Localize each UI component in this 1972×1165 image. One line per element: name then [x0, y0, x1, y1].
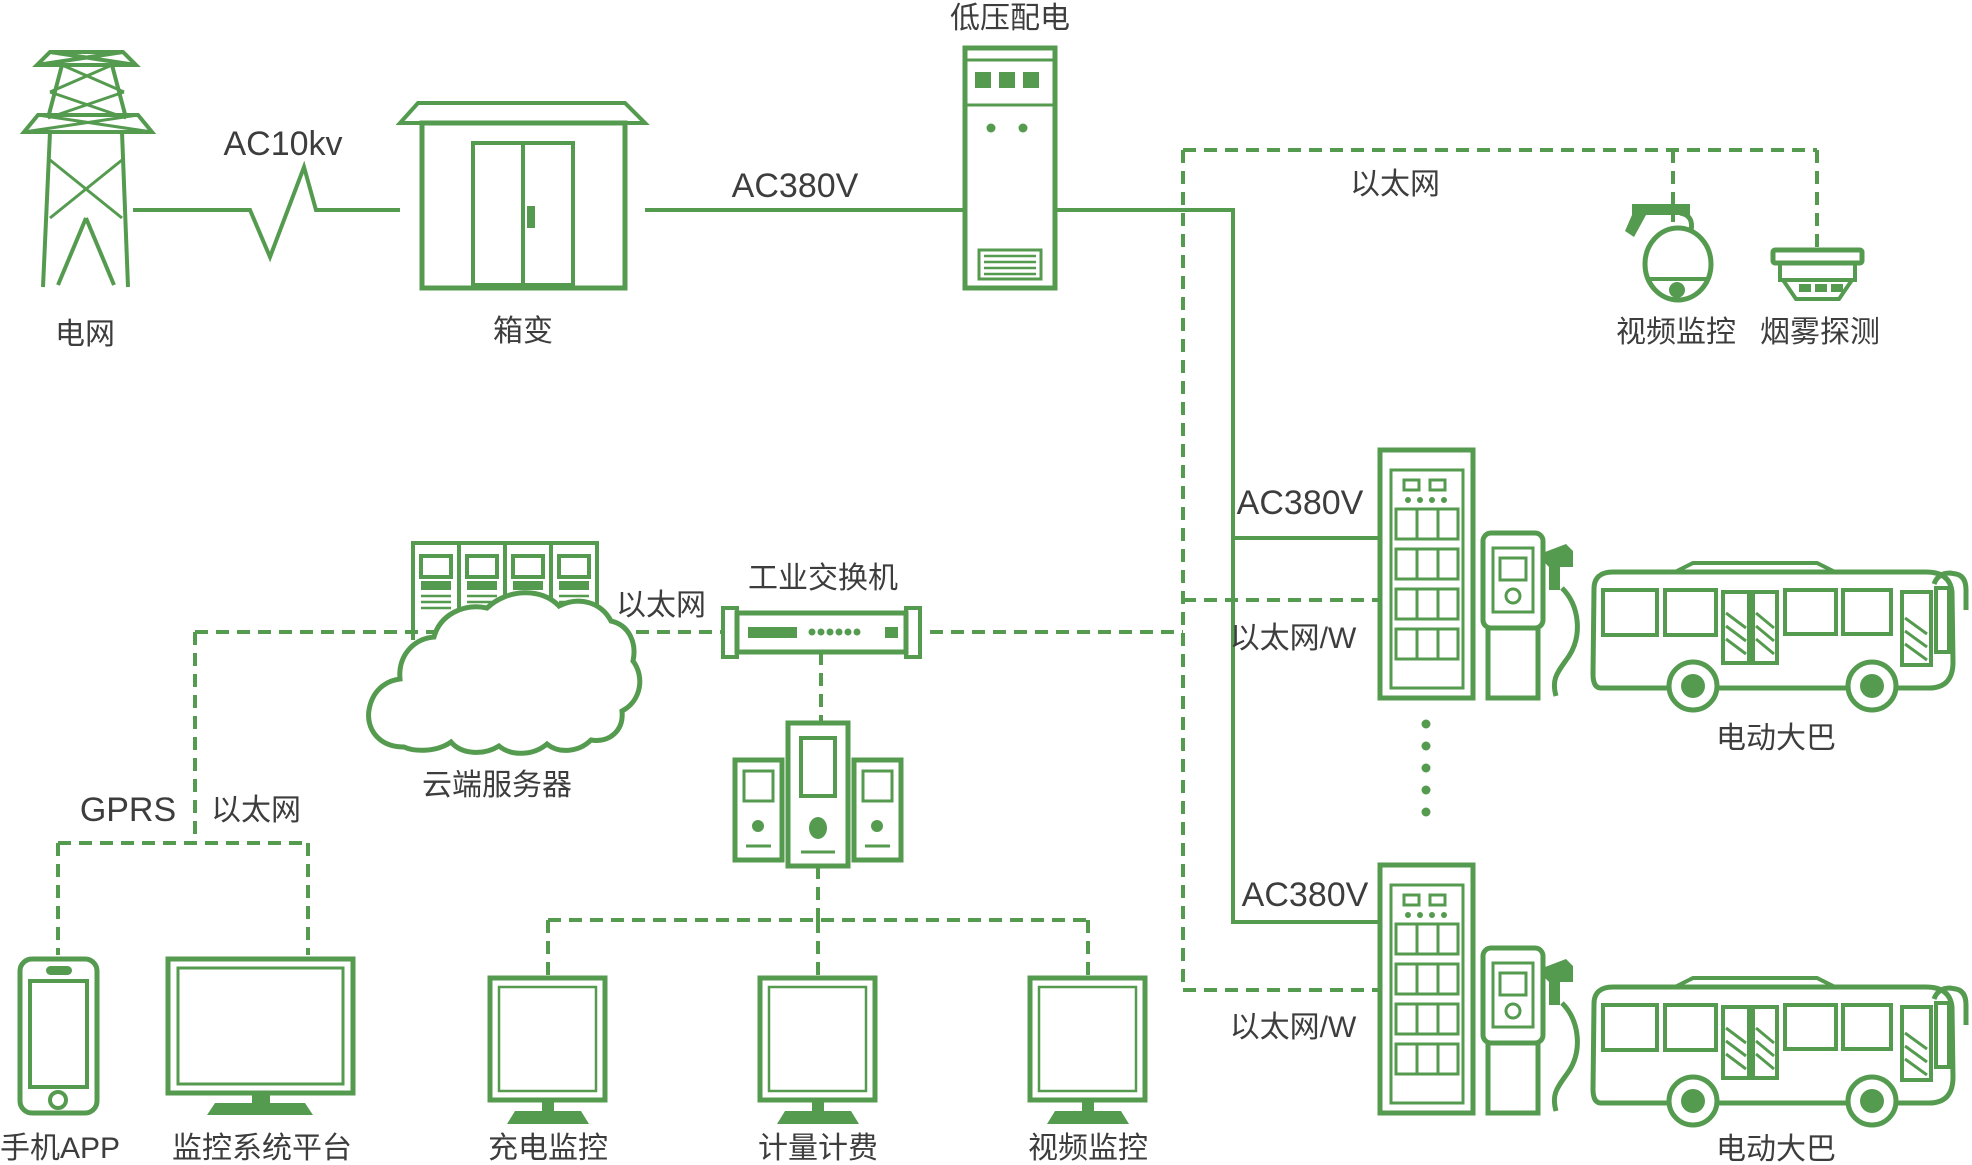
smoke-detector-icon [1773, 250, 1862, 299]
mobile-phone-icon [20, 959, 97, 1113]
electric-bus-row1 [1593, 563, 1966, 710]
video-surveillance-label: 视频监控 [1616, 316, 1736, 349]
ac380v-row2-label: AC380V [1242, 876, 1369, 914]
charging-station-row2 [1380, 865, 1577, 1113]
metering-billing-label: 计量计费 [758, 1132, 878, 1165]
ethernet-w-row2-label: 以太网/W [1230, 1011, 1357, 1044]
charging-devices-icon [735, 723, 901, 866]
rack-unit [421, 556, 451, 608]
ethernet-w-row1-label: 以太网/W [1230, 622, 1357, 655]
cloud-icon [369, 593, 640, 754]
electric-bus1-label: 电动大巴 [1716, 722, 1836, 755]
lv-distribution-label: 低压配电 [950, 2, 1070, 35]
box-transformer-label: 箱变 [493, 315, 553, 348]
charging-station-row1 [1380, 450, 1577, 698]
ac380v-row1-label: AC380V [1237, 484, 1364, 522]
rack-unit [467, 556, 497, 608]
mobile-app-label: 手机APP [0, 1132, 120, 1165]
ac380v-feeder [1055, 210, 1380, 922]
monitor-branch [548, 920, 1088, 975]
smoke-detection-label: 烟雾探测 [1760, 316, 1880, 349]
electric-bus-row2 [1593, 978, 1966, 1125]
box-transformer-icon [400, 103, 645, 288]
transmission-tower-icon [24, 52, 152, 287]
ev-charging-system-diagram: 电网 AC10kv 箱变 AC380V 低压配电 以太网 视频监控 [0, 0, 1972, 1165]
cctv-camera-icon [1625, 204, 1711, 300]
lv-distribution-cabinet-icon [965, 48, 1055, 288]
charging-monitor-label: 充电监控 [488, 1132, 608, 1165]
industrial-switch-label: 工业交换机 [748, 562, 898, 595]
monitoring-platform-label: 监控系统平台 [172, 1132, 352, 1165]
electric-bus2-label: 电动大巴 [1716, 1133, 1836, 1165]
repeat-ellipsis-dots [1422, 720, 1431, 817]
ac10kv-label: AC10kv [223, 125, 342, 163]
ethernet-top-label: 以太网 [1350, 168, 1440, 201]
power-grid-label: 电网 [55, 318, 115, 351]
gprs-branch [58, 843, 308, 955]
monitoring-platform-icon [168, 959, 353, 1115]
ethernet-cloud-label: 以太网 [616, 589, 706, 622]
ac10kv-line [133, 167, 400, 257]
cloud-server-label: 云端服务器 [422, 769, 572, 802]
metering-billing-monitor-icon [760, 978, 875, 1124]
gprs-label: GPRS [80, 791, 176, 829]
video-monitor-label: 视频监控 [1028, 1132, 1148, 1165]
video-monitor-icon [1030, 978, 1145, 1124]
industrial-switch-icon [723, 608, 920, 657]
ethernet-left-label: 以太网 [211, 794, 301, 827]
charging-monitor-icon [490, 978, 605, 1124]
ac380v-label: AC380V [732, 167, 859, 205]
